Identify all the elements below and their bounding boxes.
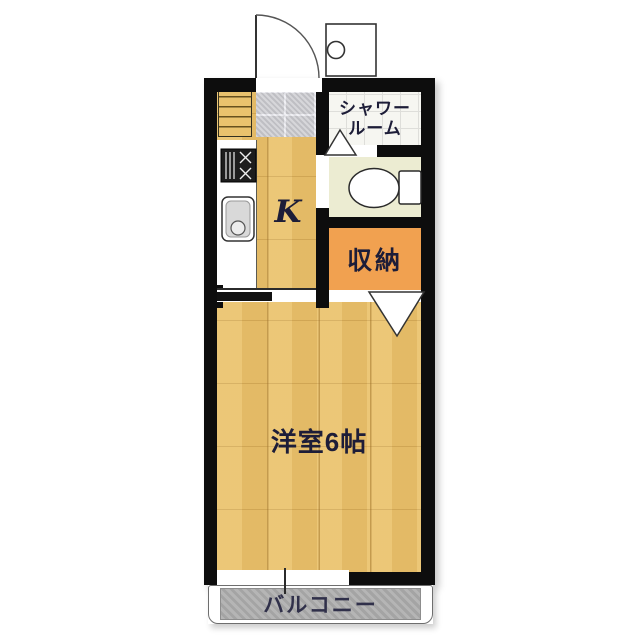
wall-right xyxy=(421,78,435,585)
kitchen-counter xyxy=(217,140,257,290)
kitchen-label: K xyxy=(262,194,314,230)
floorplan-canvas: バルコニー xyxy=(0,0,640,640)
wall-left xyxy=(204,78,217,585)
wall-divider-stub-right xyxy=(316,285,329,308)
sliding-door-track-icon xyxy=(217,288,316,290)
wall-shower-toilet xyxy=(377,145,421,157)
balcony-window xyxy=(217,570,349,585)
storage-door-opening xyxy=(329,290,421,302)
shower-room-label-line1: シャワー xyxy=(339,99,411,119)
entrance-door-swing-icon xyxy=(256,15,319,78)
entrance-tile-floor xyxy=(256,90,316,137)
western-room-label: 洋室6帖 xyxy=(217,422,421,459)
shower-room-label-line2: ルーム xyxy=(348,119,402,139)
wall-top-right xyxy=(322,78,435,92)
window-divider-icon xyxy=(284,568,286,594)
sliding-door-panel-icon xyxy=(217,292,272,301)
wall-bottom-right xyxy=(349,572,435,585)
entrance-door-opening xyxy=(256,78,322,92)
toilet-door-opening xyxy=(316,155,329,208)
wall-bottom-left xyxy=(204,572,217,585)
storage-label: 収納 xyxy=(329,228,421,290)
shoe-shelf-icon xyxy=(218,88,252,137)
wall-interior-upper xyxy=(316,92,329,155)
wall-toilet-storage xyxy=(316,217,421,228)
shower-door-opening xyxy=(329,145,377,157)
balcony-label: バルコニー xyxy=(263,589,378,619)
washing-machine-pad-icon xyxy=(326,24,376,76)
balcony-floor: バルコニー xyxy=(220,588,421,620)
toilet-room-floor xyxy=(329,157,421,217)
shower-room-label: シャワー ルーム xyxy=(329,92,421,145)
